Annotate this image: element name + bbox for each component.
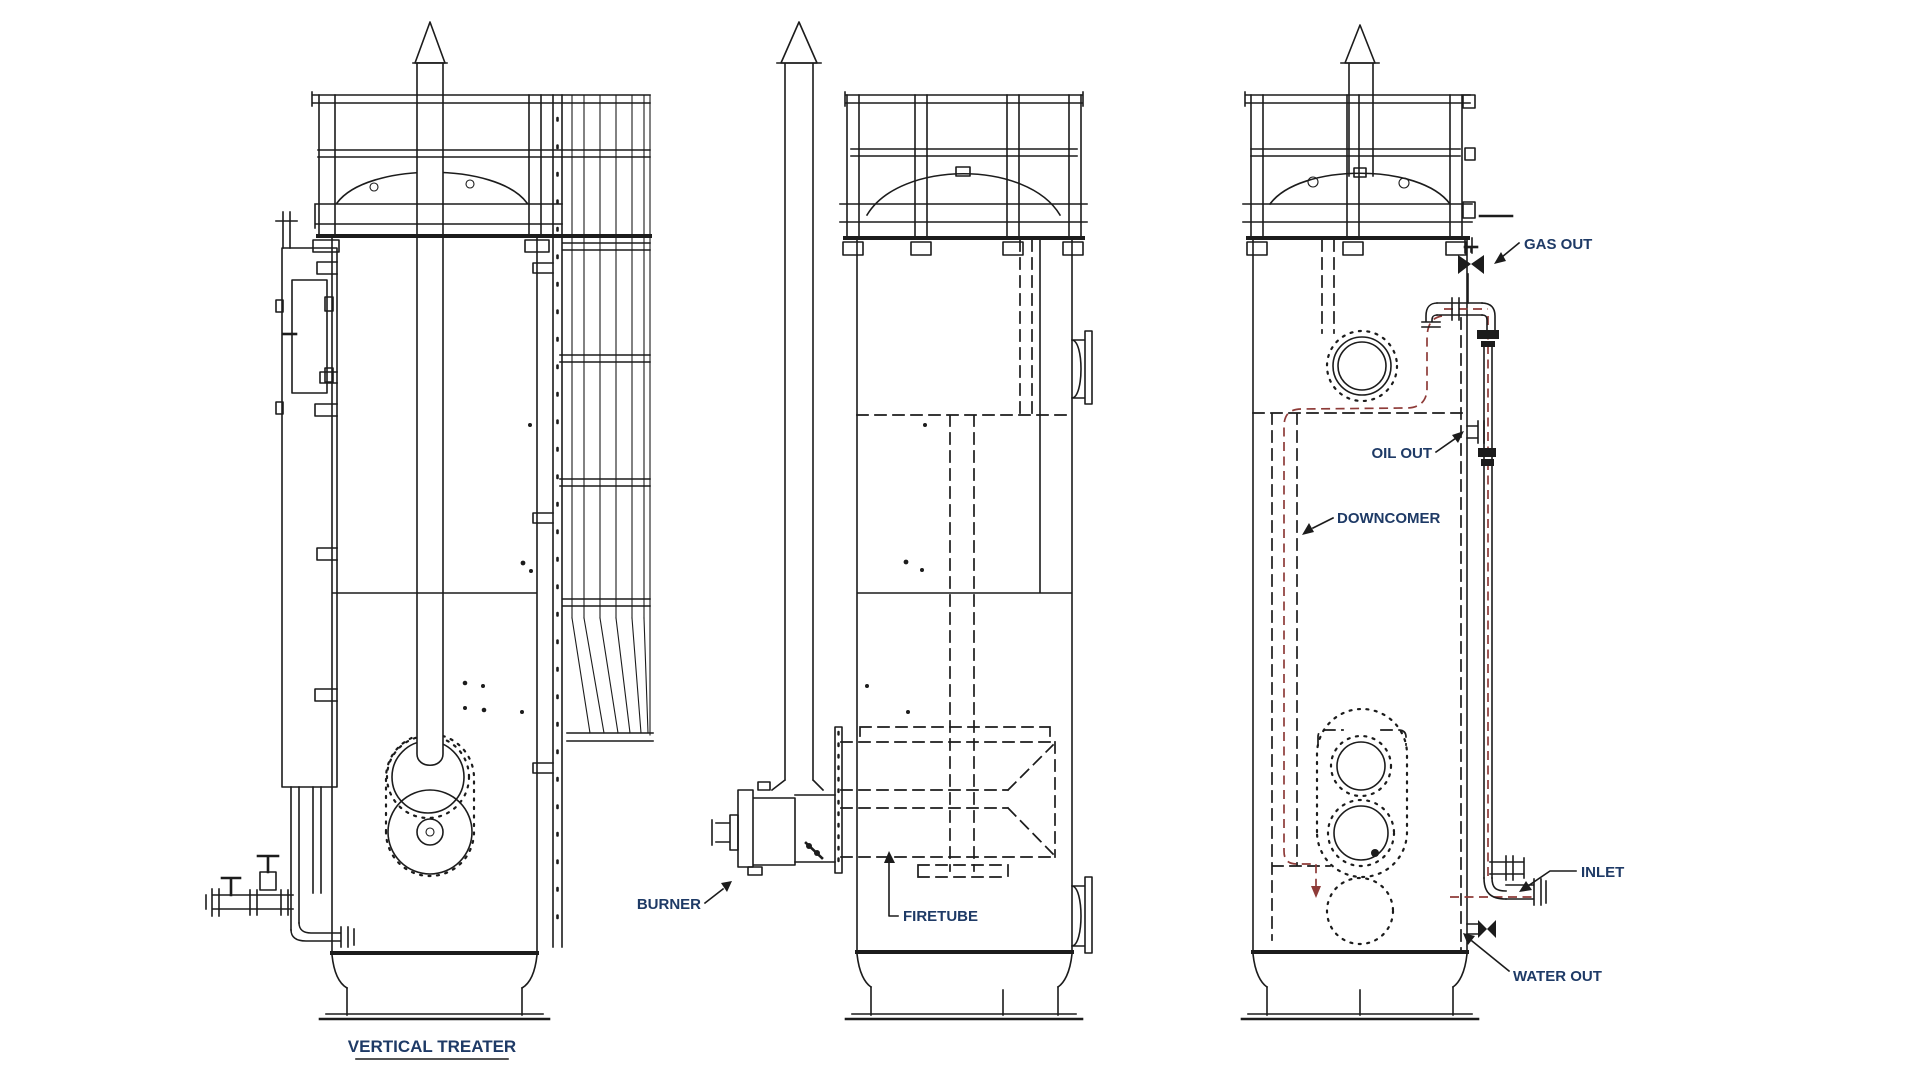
ladder-cage <box>533 95 653 947</box>
burner-label: BURNER <box>637 896 701 913</box>
side-nozzles <box>1072 331 1092 953</box>
downcomer-leader <box>1313 518 1333 528</box>
callouts: GAS OUT OIL OUT DOWNCOMER INLET WATER OU… <box>348 236 1625 1059</box>
internal-dashed-lines <box>1253 240 1467 950</box>
burner-leader <box>705 889 723 903</box>
firetube-label: FIRETUBE <box>903 908 978 925</box>
inlet-label: INLET <box>1581 864 1624 881</box>
stack-cone <box>415 22 445 63</box>
oil-out-label: OIL OUT <box>1371 445 1432 462</box>
downcomer-label: DOWNCOMER <box>1337 510 1440 527</box>
upper-manway <box>1327 331 1397 401</box>
lower-manway <box>1327 878 1393 944</box>
gas-out-callout: GAS OUT <box>1494 236 1592 264</box>
firetube-leader <box>889 862 898 916</box>
gas-out-leader <box>1502 243 1519 257</box>
vessel-shell <box>846 238 1082 1019</box>
vessel-shell <box>1242 238 1478 1019</box>
oil-out-arrow-icon <box>1452 431 1464 443</box>
head-lug <box>370 183 378 191</box>
external-piping <box>1422 238 1546 905</box>
firetube-flange-end <box>1317 709 1407 877</box>
vertical-treater-drawing: GAS OUT OIL OUT DOWNCOMER INLET WATER OU… <box>0 0 1920 1080</box>
downcomer-callout: DOWNCOMER <box>1302 510 1440 535</box>
burner-assembly <box>712 727 842 875</box>
drawing-title: VERTICAL TREATER <box>348 1037 516 1056</box>
oil-out-callout: OIL OUT <box>1371 431 1464 462</box>
inlet-leader <box>1528 871 1576 886</box>
inlet-callout: INLET <box>1519 864 1624 892</box>
burner-arrow-icon <box>721 881 732 892</box>
stack-cone <box>781 22 817 63</box>
stack-cone <box>1345 25 1375 63</box>
firetube-internals <box>841 240 1072 877</box>
title-block: VERTICAL TREATER <box>348 1037 516 1059</box>
top-platform <box>312 92 650 252</box>
bolt-dots <box>463 423 533 714</box>
gas-out-label: GAS OUT <box>1524 236 1592 253</box>
oil-out-leader <box>1436 438 1456 452</box>
drawing-canvas: GAS OUT OIL OUT DOWNCOMER INLET WATER OU… <box>0 0 1920 1080</box>
head-lug <box>466 180 474 188</box>
firetube-callout: FIRETUBE <box>884 851 978 925</box>
gas-out-arrow-icon <box>1494 252 1506 264</box>
control-panel <box>276 212 337 787</box>
water-out-label: WATER OUT <box>1513 968 1602 985</box>
downcomer-arrow-icon <box>1302 523 1314 535</box>
inlet-arrow-icon <box>1519 881 1532 892</box>
stack-pipe <box>417 63 443 765</box>
bolt-dots <box>865 423 927 714</box>
view-left-elevation <box>206 22 653 1019</box>
water-out-leader <box>1472 941 1509 971</box>
top-platform <box>1243 92 1512 255</box>
burner-callout: BURNER <box>637 881 732 913</box>
water-out-callout: WATER OUT <box>1463 933 1602 985</box>
flow-lines <box>1284 309 1536 898</box>
top-platform <box>840 92 1087 255</box>
view-middle-elevation <box>712 22 1092 1019</box>
stack-pipe <box>772 63 823 790</box>
